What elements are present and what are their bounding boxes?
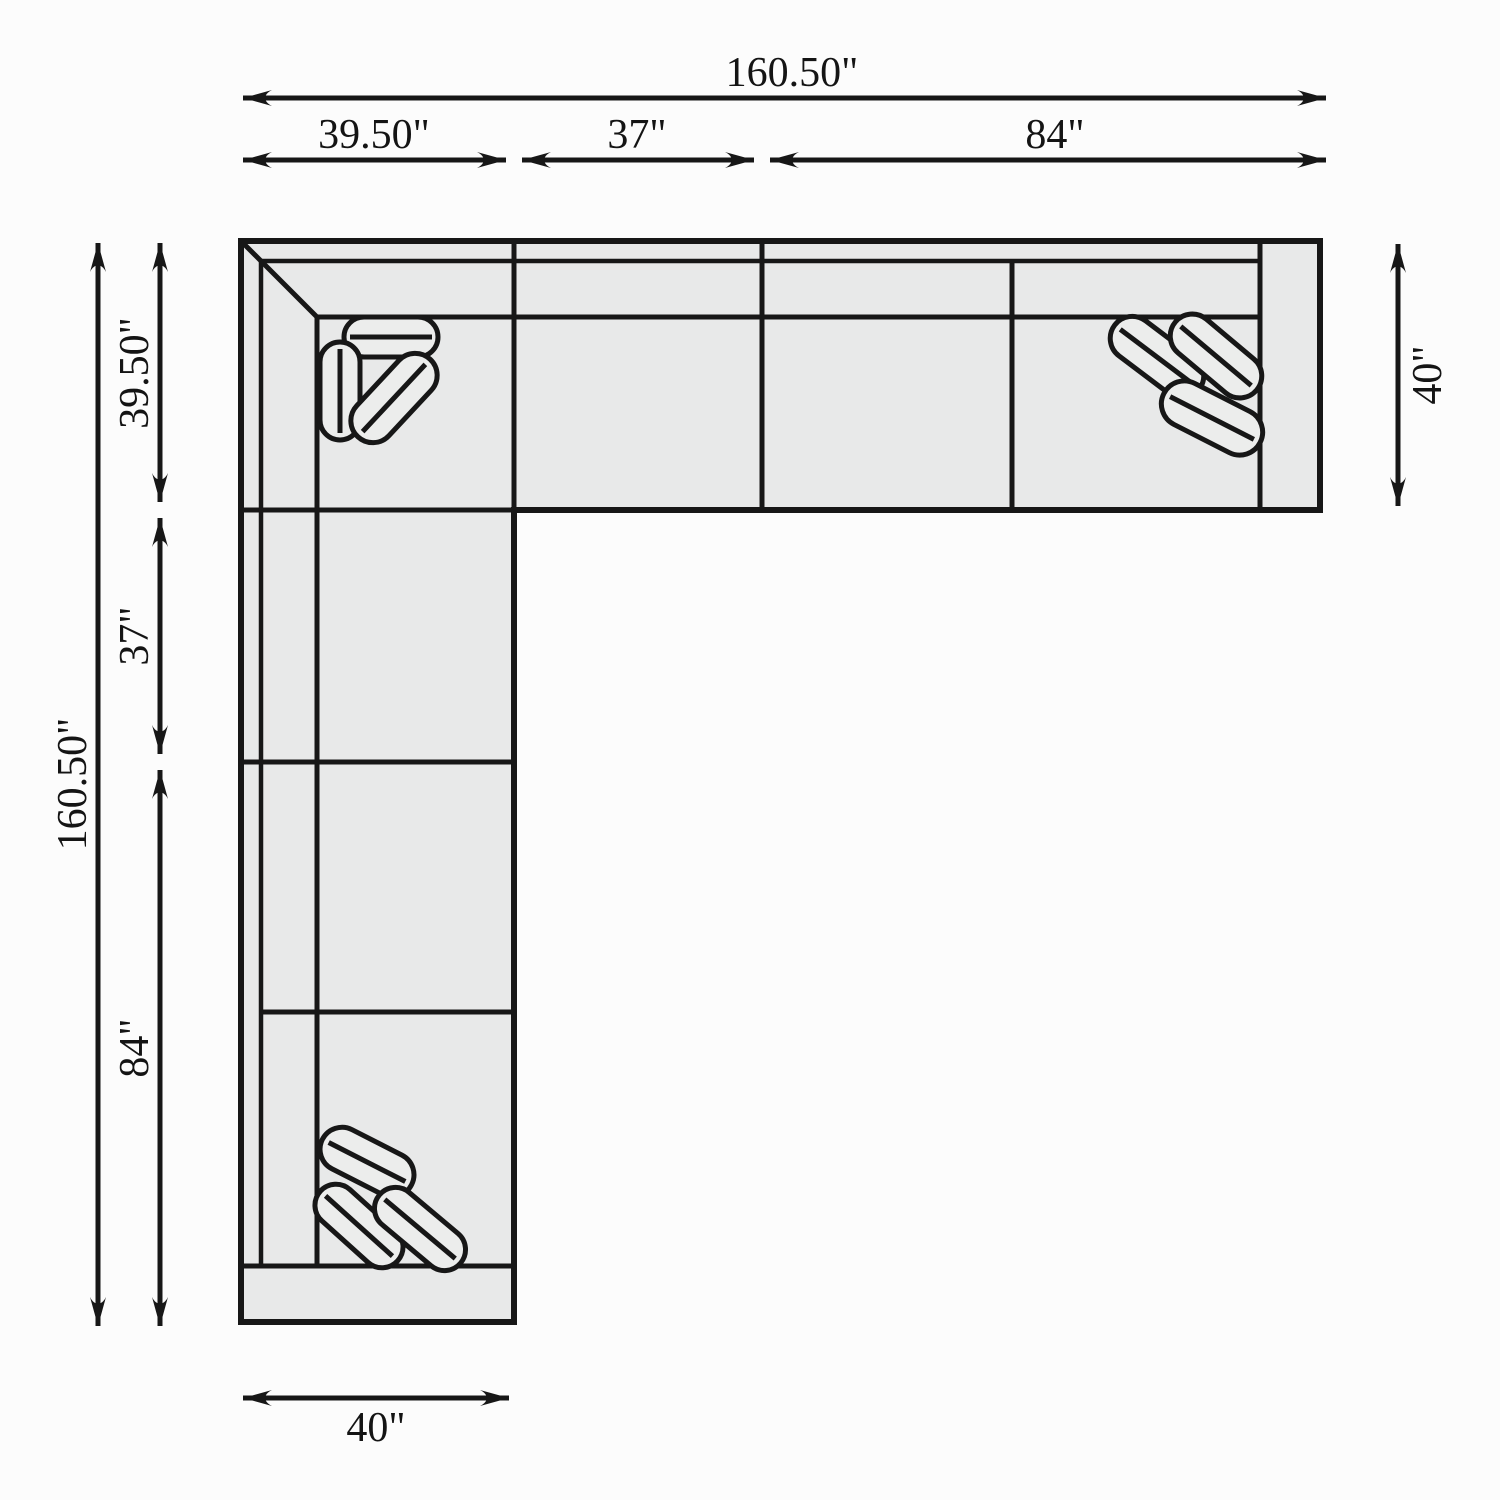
dim-left-segment-3: 84" bbox=[112, 770, 160, 1326]
dim-left-segment-1: 39.50" bbox=[112, 243, 160, 502]
dimension-label: 37" bbox=[607, 112, 666, 158]
sofa-dimension-diagram: 160.50" 39.50" 37" 84" 160.50" 39.50" 37… bbox=[0, 0, 1500, 1500]
sofa bbox=[241, 241, 1320, 1322]
dimension-label: 40" bbox=[346, 1405, 405, 1451]
dim-top-segment-2: 37" bbox=[522, 112, 754, 160]
dimension-label: 160.50" bbox=[726, 50, 859, 96]
dim-top-segment-1: 39.50" bbox=[243, 112, 506, 160]
dimension-label: 37" bbox=[112, 606, 158, 665]
diagram-canvas: 160.50" 39.50" 37" 84" 160.50" 39.50" 37… bbox=[0, 0, 1500, 1500]
dimension-label: 40" bbox=[1405, 345, 1451, 404]
dim-top-segment-3: 84" bbox=[770, 112, 1326, 160]
dimension-label: 84" bbox=[1025, 112, 1084, 158]
dim-left-total: 160.50" bbox=[50, 243, 98, 1326]
dim-left-segment-2: 37" bbox=[112, 518, 160, 754]
dim-bottom-width: 40" bbox=[243, 1398, 509, 1451]
dim-right-depth: 40" bbox=[1398, 244, 1451, 506]
dimension-label: 39.50" bbox=[318, 112, 430, 158]
dimension-label: 160.50" bbox=[50, 718, 96, 851]
dimension-label: 84" bbox=[112, 1018, 158, 1077]
dim-top-total: 160.50" bbox=[243, 50, 1326, 98]
dimension-label: 39.50" bbox=[112, 317, 158, 429]
